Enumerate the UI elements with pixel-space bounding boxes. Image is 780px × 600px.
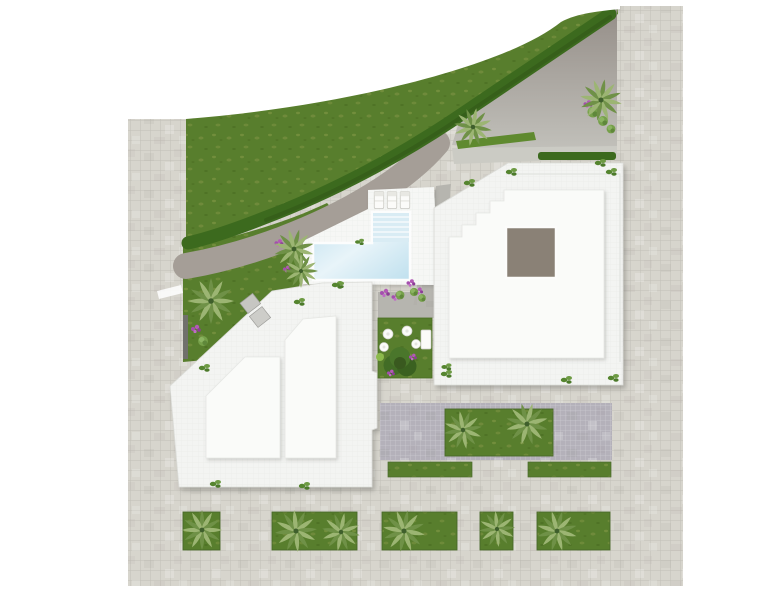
courtyard-bench (421, 330, 431, 349)
courtyard-table (402, 326, 412, 336)
site-plan-render: Residential site plan — top-down 3D rend… (0, 0, 780, 600)
grass-strip (528, 462, 611, 477)
grass-strip (388, 462, 472, 477)
sun-lounger (374, 191, 384, 208)
shrub (418, 294, 426, 302)
sun-lounger (387, 191, 397, 208)
courtyard-table (383, 329, 393, 339)
building-b-roof-right (285, 316, 336, 458)
site-plan-canvas: Residential site plan — top-down 3D rend… (0, 0, 780, 600)
sun-lounger (400, 191, 410, 208)
shrub (376, 353, 384, 361)
shrub (198, 336, 208, 346)
garden-wall (183, 315, 188, 359)
building-a (434, 163, 623, 385)
building-hedge-strip (538, 152, 616, 160)
courtyard-table (412, 340, 421, 349)
courtyard-table (380, 343, 389, 352)
street-planter (537, 512, 610, 550)
building-a-skylight (506, 227, 556, 278)
shrub (410, 288, 418, 296)
shrub (607, 125, 616, 134)
shrub (396, 291, 405, 300)
